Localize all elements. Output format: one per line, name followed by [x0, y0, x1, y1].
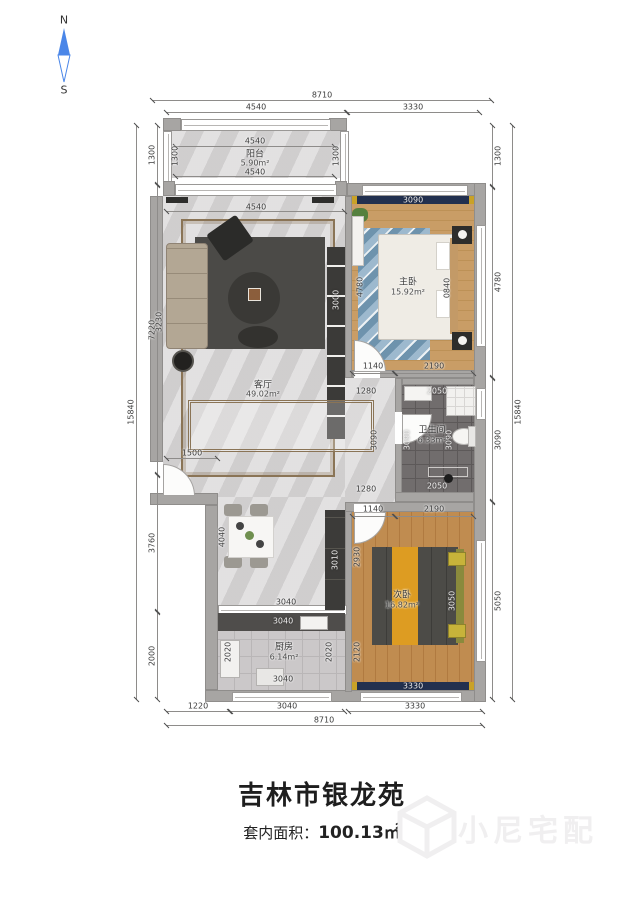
dim-line	[152, 100, 492, 101]
nightstand-lamp	[458, 230, 467, 239]
table-setting	[256, 540, 264, 548]
dim-bottom-1220: 1220	[188, 702, 208, 711]
dim-hall-3090: 3090	[370, 430, 379, 450]
bath-door-opening	[395, 412, 402, 444]
dim-line	[395, 373, 474, 374]
dim-right-1300: 1300	[494, 146, 503, 166]
dim-line	[352, 516, 395, 517]
pillow	[436, 242, 450, 270]
dim-line	[352, 373, 395, 374]
area-summary: 套内面积：100.13㎡	[243, 818, 401, 843]
dim-kitchen-top: 3040	[273, 617, 293, 626]
dim-kitchen-left: 2020	[224, 642, 233, 662]
dim-balcony-top: 4540	[245, 137, 265, 146]
room-area-bath: 6.33m²	[418, 436, 447, 445]
bedside-stool	[448, 552, 466, 566]
dim-second-left-b: 2120	[353, 642, 362, 662]
dim-second-left-a: 2930	[353, 547, 362, 567]
wall-post	[163, 118, 181, 131]
curtain-cap	[352, 196, 357, 204]
master-top-window	[362, 185, 468, 196]
dining-chair	[224, 504, 242, 516]
dim-line	[157, 475, 158, 612]
dim-line	[157, 612, 158, 700]
dim-living-top: 4540	[246, 203, 266, 212]
dim-hall-1280b: 1280	[356, 485, 376, 494]
dim-kitchen-right: 2020	[325, 642, 334, 662]
curtain-cap	[469, 682, 474, 690]
toilet-tank	[468, 426, 476, 447]
page-title: 吉林市银龙苑	[238, 775, 406, 812]
bathroom-window	[476, 388, 486, 420]
dim-right-5050: 5050	[494, 591, 503, 611]
dim-line	[395, 516, 474, 517]
room-label-second: 次卧	[393, 588, 411, 601]
dim-top-left: 4540	[246, 103, 266, 112]
room-area-balcony: 5.90m²	[241, 159, 270, 168]
master-wardrobe	[352, 216, 364, 266]
sofa	[166, 243, 208, 349]
dim-line	[166, 112, 347, 113]
dim-second-window: 3330	[403, 682, 423, 691]
dim-wardrobe-3010: 3010	[331, 550, 340, 570]
dim-bottom-3040: 3040	[277, 702, 297, 711]
room-label-bath: 卫生间	[418, 423, 445, 436]
runner-rug	[188, 400, 374, 452]
dim-hall-1280a: 1280	[356, 387, 376, 396]
kitchen-window	[232, 692, 332, 702]
dim-second-t1: 1140	[363, 505, 383, 514]
curtain-cap	[469, 196, 474, 204]
dim-left-total: 15840	[127, 399, 136, 424]
dim-top-total: 8710	[312, 91, 332, 100]
room-label-master: 主卧	[399, 275, 417, 288]
curtain-cap	[352, 682, 357, 690]
bath-top-wall	[402, 378, 474, 385]
table-tray	[248, 288, 261, 301]
wall-post	[163, 181, 175, 196]
ottoman	[238, 326, 278, 348]
table-plant	[245, 531, 254, 540]
nightstand-lamp	[458, 336, 467, 345]
shower	[446, 386, 476, 416]
dim-balcony-left: 1300	[171, 146, 180, 166]
bedside-stool	[448, 624, 466, 638]
dim-living-1500: 1500	[182, 449, 202, 458]
curtain-bracket	[312, 197, 334, 203]
compass-north-label: N	[60, 14, 68, 27]
dim-living-sofa: 3230	[155, 312, 164, 332]
area-summary-label: 套内面积：	[243, 824, 318, 842]
room-area-living: 49.02m²	[246, 390, 280, 399]
dim-left-3760: 3760	[148, 533, 157, 553]
dim-line	[136, 125, 137, 700]
floor-plan-page: N S	[0, 0, 640, 905]
dim-bath-top: 2050	[427, 387, 447, 396]
lower-left-wall	[205, 505, 218, 690]
dim-master-left: 4780	[356, 277, 365, 297]
dim-line	[348, 711, 483, 712]
dim-second-t2: 2190	[424, 505, 444, 514]
dim-line	[347, 112, 480, 113]
room-label-kitchen: 厨房	[275, 640, 293, 653]
balcony-window-right	[340, 131, 349, 185]
dim-master-side: 0840	[443, 278, 452, 298]
dim-left-1300: 1300	[148, 145, 157, 165]
balcony-window	[181, 119, 331, 131]
dim-dining-4040: 4040	[218, 527, 227, 547]
master-right-window	[476, 225, 486, 347]
dim-top-right: 3330	[403, 103, 423, 112]
center-wall-upper	[345, 196, 352, 378]
dim-dining-3040: 3040	[276, 598, 296, 607]
dim-line	[166, 725, 483, 726]
dim-bottom-total: 8710	[314, 716, 334, 725]
curtain-bracket	[166, 197, 188, 203]
second-bedroom-window	[360, 692, 462, 702]
dining-chair	[250, 504, 268, 516]
dim-right-total: 15840	[514, 399, 523, 424]
dim-line	[157, 125, 158, 185]
room-area-master: 15.92m²	[391, 288, 425, 297]
compass-south-label: S	[61, 84, 68, 97]
watermark-brand: 小尼宅配	[458, 806, 598, 850]
dim-bath-left: 3090	[403, 430, 412, 450]
dim-balcony-bottom: 4540	[245, 168, 265, 177]
second-right-window	[476, 540, 486, 662]
dim-bath-bottom: 2050	[427, 482, 447, 491]
dim-right-3090: 3090	[494, 430, 503, 450]
center-wall-lower	[345, 502, 352, 692]
area-summary-value: 100.13㎡	[318, 823, 401, 843]
dim-balcony-right: 1300	[332, 146, 341, 166]
dim-master-b1: 1140	[363, 362, 383, 371]
watermark-cube-icon	[396, 794, 458, 860]
wall-post	[329, 118, 347, 131]
dim-line	[230, 711, 345, 712]
room-area-kitchen: 6.14m²	[270, 653, 299, 662]
dim-bottom-3330: 3330	[405, 702, 425, 711]
bath-bottom-wall	[395, 492, 474, 502]
dim-kitchen-bottom: 3040	[273, 675, 293, 684]
dim-master-window: 3090	[403, 196, 423, 205]
balcony-living-window	[175, 184, 337, 196]
dim-master-b2: 2190	[424, 362, 444, 371]
compass-needle-icon	[55, 28, 73, 84]
dim-line	[166, 458, 218, 459]
dim-right-4780: 4780	[494, 272, 503, 292]
dim-line	[166, 711, 230, 712]
dim-tv-wall: 3000	[332, 290, 341, 310]
dim-left-2000: 2000	[148, 646, 157, 666]
dim-second-side: 3050	[448, 591, 457, 611]
floor-lamp	[172, 350, 194, 372]
kitchen-sink	[300, 616, 328, 630]
room-area-second: 16.82m²	[385, 601, 419, 610]
table-setting	[236, 522, 244, 530]
